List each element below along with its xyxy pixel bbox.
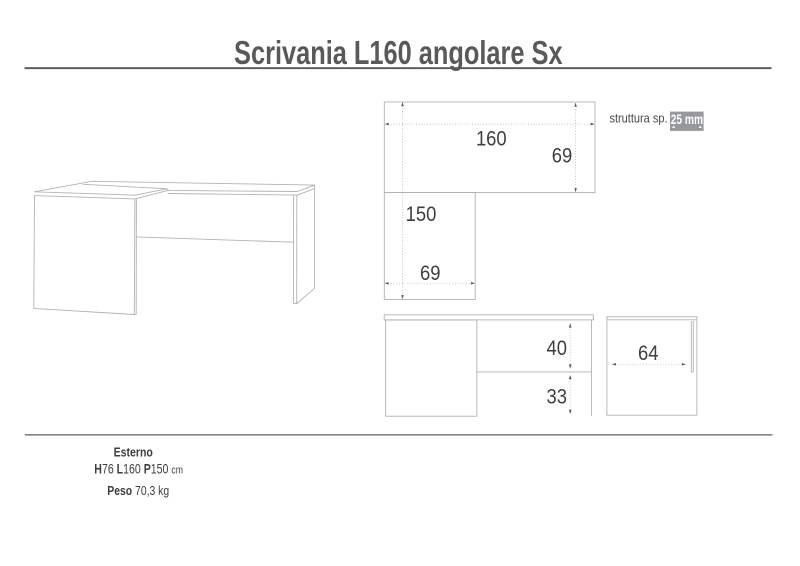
- svg-text:160: 160: [476, 127, 507, 150]
- svg-text:25 mm: 25 mm: [671, 112, 703, 128]
- svg-text:H76 L160 P150 cm: H76 L160 P150 cm: [94, 461, 183, 477]
- svg-text:40: 40: [547, 337, 567, 360]
- svg-text:33: 33: [547, 386, 567, 409]
- svg-text:69: 69: [420, 262, 440, 285]
- svg-text:Esterno: Esterno: [114, 444, 153, 459]
- svg-text:Scrivania L160 angolare Sx: Scrivania L160 angolare Sx: [234, 35, 563, 72]
- svg-text:64: 64: [638, 342, 658, 365]
- svg-text:69: 69: [552, 144, 572, 167]
- svg-text:150: 150: [406, 203, 437, 226]
- svg-text:struttura sp.: struttura sp.: [609, 112, 667, 126]
- svg-text:Peso 70,3 kg: Peso 70,3 kg: [107, 484, 169, 498]
